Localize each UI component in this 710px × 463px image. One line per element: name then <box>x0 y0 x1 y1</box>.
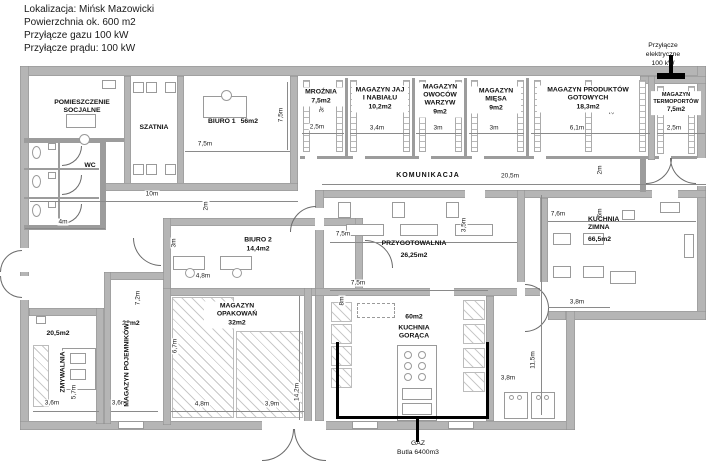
gas-label-value: Butla 6400m3 <box>397 449 439 458</box>
door-arc <box>262 429 294 461</box>
furniture-chair <box>185 268 195 278</box>
room-name: MAGAZYN PRODUKTÓW GOTOWYCH <box>547 86 629 101</box>
sink <box>48 201 56 208</box>
electric-connection-symbol <box>657 73 685 79</box>
room-name: SZATNIA <box>140 124 169 131</box>
wall <box>24 197 99 199</box>
dimension-label: 7,5m <box>197 141 213 148</box>
wall <box>566 311 575 430</box>
furniture-locker <box>165 82 176 93</box>
door-arc <box>525 308 549 332</box>
header-line: Przyłącze prądu: 100 kW <box>24 42 154 55</box>
gas-line <box>416 416 419 442</box>
door-arc <box>133 238 161 266</box>
furniture-chair <box>79 134 90 145</box>
door-arc <box>670 158 696 184</box>
room-label-zmywalnia: ZMYWALNIA <box>60 350 67 393</box>
room-label-szatnia: SZATNIA <box>140 124 169 132</box>
wall <box>315 190 706 198</box>
dimension-line <box>416 133 462 134</box>
furniture-sink-unit <box>446 202 459 218</box>
gas-line <box>336 416 489 419</box>
room-name: KUCHNIA GORĄCA <box>388 324 440 340</box>
fridge <box>531 392 555 419</box>
wall <box>290 76 298 191</box>
furniture-locker <box>133 82 144 93</box>
wall <box>96 308 104 424</box>
door-opening <box>652 190 678 198</box>
shelf <box>639 80 646 152</box>
furniture-locker <box>146 164 157 175</box>
dimension-label: 7,6m <box>550 211 566 218</box>
gas-connection-label: GAZ Butla 6400m3 <box>397 440 439 458</box>
wall <box>648 76 655 160</box>
burner <box>418 351 426 359</box>
furniture-table <box>66 114 96 128</box>
room-area-zmywalnia: 20,5m2 <box>44 329 71 339</box>
dimension-label: 7,2m <box>135 290 142 306</box>
door-opening <box>353 156 365 159</box>
wall <box>100 183 298 191</box>
door-sill <box>352 421 378 429</box>
dimension-label: 2m <box>203 200 210 211</box>
dimension-line <box>30 201 298 202</box>
door-arc <box>62 146 82 166</box>
room-label-magazyn-opakowan: MAGAZYN OPAKOWAŃ 32m2 <box>204 301 270 328</box>
room-area: 66,5m2 <box>588 236 636 244</box>
gas-line <box>486 342 489 419</box>
room-area: 10,2m2 <box>354 104 406 112</box>
wall <box>100 138 106 230</box>
dimension-label: 3,8m <box>500 375 516 382</box>
furniture-cabinet <box>102 80 116 89</box>
room-area: 26,25m2 <box>382 252 447 260</box>
wall <box>58 140 60 225</box>
room-label-mroznia: MROŹNIA 7,5m2 <box>299 87 343 106</box>
sink <box>36 316 46 324</box>
gas-line <box>336 342 339 419</box>
dimension-label: 3,8m <box>569 299 585 306</box>
dimension-label: 10m <box>145 191 160 198</box>
dimension-label: 2,5m <box>666 125 682 132</box>
fridge-detail <box>544 395 549 400</box>
dimension-label: 4,8m <box>194 401 210 408</box>
dimension-label: 7,5m <box>278 107 285 123</box>
wall <box>163 288 171 425</box>
dimension-label: 2,5m <box>309 124 325 131</box>
room-area: 56m2 <box>241 118 258 125</box>
door-arc <box>294 429 326 461</box>
room-label-kuchnia-zimna: KUCHNIA ZIMNA 66,5m2 <box>588 216 636 244</box>
dimension-line <box>657 133 705 134</box>
dimension-label: 3,4m <box>369 125 385 132</box>
header-line: Powierzchnia ok. 600 m2 <box>24 16 154 29</box>
toilet <box>32 175 41 188</box>
furniture-sink-unit <box>392 202 405 218</box>
door-opening <box>419 156 431 159</box>
dimension-label: 2m <box>597 164 604 175</box>
door-opening <box>534 156 546 159</box>
dimension-line <box>33 411 99 412</box>
floor-plan: Lokalizacja: Mińsk Mazowicki Powierzchni… <box>0 0 710 463</box>
door-arc <box>0 250 22 272</box>
furniture-locker <box>165 164 176 175</box>
dimension-line <box>302 133 344 134</box>
sink <box>70 353 86 364</box>
wall <box>24 138 106 143</box>
fridge-detail <box>509 395 514 400</box>
gas-label-title: GAZ <box>397 440 439 449</box>
room-name: MAGAZYN TERMOPORTÓW <box>653 92 698 105</box>
dimension-line <box>541 195 542 415</box>
wall <box>106 138 124 142</box>
door-sill <box>448 421 474 429</box>
dimension-line <box>330 290 488 291</box>
header-line: Lokalizacja: Mińsk Mazowicki <box>24 3 154 16</box>
furniture-locker <box>146 82 157 93</box>
furniture-counter <box>402 403 432 415</box>
furniture-counter <box>610 271 636 284</box>
door-arc <box>62 175 82 195</box>
plan-header: Lokalizacja: Mińsk Mazowicki Powierzchni… <box>24 3 154 55</box>
kitchen-equipment <box>463 300 485 320</box>
electric-label-value: 100 kW <box>640 60 687 69</box>
furniture-chair <box>221 90 232 101</box>
furniture-counter <box>660 202 680 213</box>
dimension-label: 4,8m <box>195 273 211 280</box>
room-name: MAGAZYN MIĘSA <box>479 87 513 102</box>
room-area: 32m2 <box>206 320 268 328</box>
wall <box>566 311 706 320</box>
furniture-worktable <box>346 224 384 236</box>
door-arc <box>646 158 672 184</box>
dimension-label: 3,6m <box>44 400 60 407</box>
wall <box>304 288 312 425</box>
toilet <box>32 146 41 159</box>
room-label-przygotowalnia: PRZYGOTOWALNIA 26,25m2 <box>382 240 447 260</box>
room-area: 14,4m2 <box>228 246 288 254</box>
door-opening <box>465 190 485 198</box>
room-area: 7,5m2 <box>653 106 699 114</box>
wall <box>345 78 348 156</box>
wall <box>412 78 415 156</box>
dimension-label: 3m <box>488 125 499 132</box>
furniture-counter <box>684 234 694 258</box>
room-label-biuro-1: BIURO 156m2 <box>208 118 258 126</box>
fridge <box>504 392 528 419</box>
dimension-line <box>548 307 610 308</box>
room-name: WC <box>84 162 95 169</box>
wall <box>124 76 131 185</box>
sink <box>48 143 56 150</box>
dimension-label: 4m <box>57 219 68 226</box>
room-name: MROŹNIA <box>305 88 337 95</box>
room-label-magazyn-owocow-warzyw: MAGAZYN OWOCÓW WARZYW 9m2 <box>417 82 463 117</box>
dimension-label: 6,7m <box>172 338 179 354</box>
furniture-counter <box>583 266 604 278</box>
room-area: 7,5m2 <box>301 98 341 106</box>
dimension-line <box>111 411 158 412</box>
door-arc <box>290 206 316 232</box>
dimension-line <box>185 151 290 152</box>
door-opening <box>472 156 484 159</box>
room-name: MAGAZYN OPAKOWAŃ <box>217 302 257 317</box>
room-area: 9m2 <box>473 105 519 113</box>
furniture-counter <box>402 388 432 400</box>
room-name: BIURO 2 <box>244 236 272 243</box>
dimension-label: 11,5m <box>530 350 537 370</box>
electric-connection-label: Przyłącze elektryczne 100 kW <box>640 42 687 68</box>
dimension-label: 20,5m <box>500 173 520 180</box>
dimension-label: 5,7m <box>71 384 78 400</box>
kitchen-equipment <box>463 324 485 344</box>
wall <box>20 66 706 76</box>
burner <box>404 351 412 359</box>
dimension-line <box>287 82 288 150</box>
kitchen-equipment <box>463 372 485 392</box>
door-arc <box>0 276 22 298</box>
room-label-wc: WC <box>84 162 95 170</box>
furniture-locker <box>133 164 144 175</box>
stove-unit <box>331 346 352 366</box>
wall <box>177 76 184 185</box>
dimension-line <box>469 133 524 134</box>
dimension-line <box>171 411 304 412</box>
fridge-detail <box>517 395 522 400</box>
room-name: PRZYGOTOWALNIA <box>382 240 447 247</box>
room-label-biuro-2: BIURO 2 14,4m2 <box>228 236 288 253</box>
room-label-magazyn-jaj: MAGAZYN JAJ I NABIAŁU 10,2m2 <box>352 85 408 112</box>
room-name: POMIESZCZENIE SOCJALNE <box>54 99 110 114</box>
furniture-counter <box>553 233 571 245</box>
burner <box>418 362 426 370</box>
room-label-magazyn-pojemnikow: MAGAZYN POJEMNIKÓW <box>124 322 131 407</box>
dimension-label: 7,5m <box>350 280 366 287</box>
burner <box>404 362 412 370</box>
dimension-label: 6,1m <box>569 125 585 132</box>
room-label-magazyn-miesa: MAGAZYN MIĘSA 9m2 <box>471 86 521 113</box>
header-line: Przyłącze gazu 100 kW <box>24 29 154 42</box>
furniture-sink-unit <box>338 202 351 218</box>
door-opening <box>517 282 525 320</box>
room-name: BIURO 1 <box>208 118 236 125</box>
wall <box>104 272 164 280</box>
door-sill <box>118 421 144 429</box>
electric-label-title: Przyłącze elektryczne <box>640 42 687 60</box>
sink <box>70 369 86 380</box>
dimension-label: 3,5m <box>461 217 468 233</box>
sink <box>48 172 56 179</box>
room-label-kuchnia-goraca: KUCHNIA GORĄCA 60m2 <box>388 313 440 340</box>
wall <box>163 218 171 296</box>
room-name: MAGAZYN OWOCÓW WARZYW <box>423 83 457 106</box>
wall <box>163 218 363 226</box>
rack <box>33 345 49 407</box>
burner <box>404 373 412 381</box>
stove-unit <box>331 324 352 344</box>
wall <box>548 311 566 320</box>
dimension-line <box>322 184 706 185</box>
door-opening <box>697 158 706 186</box>
dimension-label: 3,9m <box>264 401 280 408</box>
wall <box>526 78 529 156</box>
burner <box>418 373 426 381</box>
room-label-magazyn-produktow-gotowych: MAGAZYN PRODUKTÓW GOTOWYCH 18,3m2 <box>537 85 639 112</box>
dimension-label: 3m <box>432 125 443 132</box>
kitchen-equipment <box>463 348 485 368</box>
room-area: 9m2 <box>419 109 461 117</box>
dimension-label: 3m <box>171 237 178 248</box>
dimension-line <box>350 133 410 134</box>
room-area: 60m2 <box>388 313 440 321</box>
room-name: KUCHNIA ZIMNA <box>588 216 619 231</box>
furniture-chair <box>232 268 242 278</box>
dimension-label: 8m <box>339 295 346 306</box>
toilet <box>32 204 41 217</box>
wall <box>464 78 467 156</box>
room-name: KOMUNIKACJA <box>396 172 460 179</box>
door-opening <box>315 208 324 230</box>
stove-unit <box>331 368 352 388</box>
furniture-worktable <box>400 224 438 236</box>
room-name: MAGAZYN JAJ I NABIAŁU <box>356 86 405 101</box>
room-label-pomieszczenie-socjalne: POMIESZCZENIE SOCJALNE <box>49 99 115 115</box>
dimension-label: 7,5m <box>335 231 351 238</box>
room-area: 18,3m2 <box>539 104 637 112</box>
room-label-magazyn-termoportow: MAGAZYN TERMOPORTÓW 7,5m2 <box>651 91 701 115</box>
dimension-line <box>531 133 650 134</box>
furniture-counter <box>553 266 571 278</box>
door-opening <box>305 156 317 159</box>
dimension-label: 14,2m <box>294 382 301 402</box>
room-label-komunikacja: KOMUNIKACJA <box>396 172 460 180</box>
wall <box>29 308 105 316</box>
dimension-line <box>25 228 105 229</box>
